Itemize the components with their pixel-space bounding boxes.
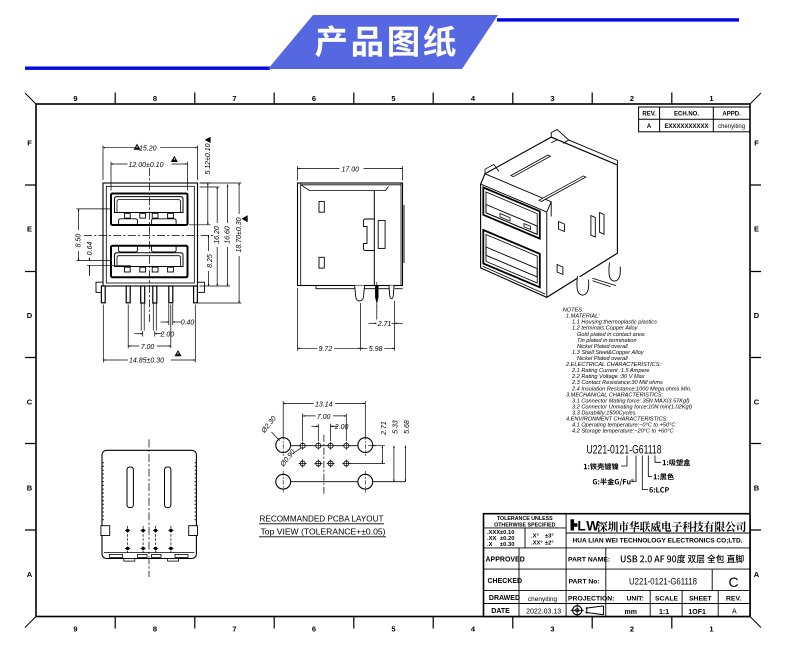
svg-text:.XX°: .XX° (531, 541, 543, 547)
svg-text:2.4 Insulation Resistance:10: 2.4 Insulation Resistance:1000 Mega ohms… (571, 386, 691, 392)
svg-text:DRAWED: DRAWED (489, 595, 520, 602)
svg-text:L: L (577, 519, 585, 534)
svg-text:2.71: 2.71 (381, 421, 388, 436)
svg-text:5: 5 (391, 94, 395, 103)
svg-text:2: 2 (630, 625, 634, 634)
svg-text:14.85±0.30: 14.85±0.30 (129, 357, 164, 364)
svg-text:2.00: 2.00 (334, 424, 349, 431)
svg-text:F: F (27, 139, 32, 148)
svg-text:16.20: 16.20 (214, 226, 221, 244)
svg-text:U221-0121-G61118: U221-0121-G61118 (629, 577, 697, 588)
svg-text:9: 9 (73, 94, 77, 103)
svg-text:E: E (754, 225, 759, 234)
svg-text:6: 6 (312, 625, 316, 634)
svg-text:3: 3 (550, 625, 554, 634)
svg-text:1:1: 1:1 (659, 609, 669, 616)
svg-text:8.50: 8.50 (75, 234, 82, 248)
svg-text:A: A (647, 124, 652, 130)
svg-text:EXXXXXXXXXX: EXXXXXXXXXX (665, 124, 709, 130)
svg-text:mm: mm (625, 609, 637, 616)
svg-text:W: W (586, 519, 599, 534)
svg-text:.X: .X (487, 542, 493, 548)
svg-text:4: 4 (471, 94, 476, 103)
svg-text:SCALE: SCALE (655, 596, 679, 603)
svg-text:5.12±0.10: 5.12±0.10 (205, 143, 212, 174)
svg-text:12.00±0.10: 12.00±0.10 (129, 162, 164, 169)
svg-text:UNIT:: UNIT: (627, 596, 644, 603)
svg-text:9: 9 (73, 625, 77, 634)
svg-text:Tin plated in termination: Tin plated in termination (577, 338, 637, 344)
svg-text:Ø2.30: Ø2.30 (260, 415, 278, 435)
svg-text:U221-0121-G61118: U221-0121-G61118 (587, 445, 662, 457)
svg-text:SHEET: SHEET (689, 596, 713, 603)
svg-text:3: 3 (550, 94, 554, 103)
svg-text:1: 1 (709, 625, 713, 634)
svg-text:PART No:: PART No: (569, 579, 600, 586)
svg-text:7.00: 7.00 (141, 344, 155, 351)
svg-text:B: B (27, 484, 33, 493)
svg-text:D: D (754, 311, 760, 320)
svg-text:chenyiting: chenyiting (528, 596, 558, 603)
svg-text:18.70±0.30: 18.70±0.30 (236, 217, 243, 252)
svg-text:OTHERWISE SPECIFIED: OTHERWISE SPECIFIED (494, 523, 556, 529)
svg-text:APPD.: APPD. (722, 112, 741, 118)
svg-text:9.72: 9.72 (319, 346, 333, 353)
svg-text:3.1 Connector Mating force:: 3.1 Connector Mating force: 35N MAX(3.57… (572, 398, 690, 404)
svg-text:B: B (754, 484, 760, 493)
svg-text:4.2 Storage temperature:−20°: 4.2 Storage temperature:−20°C to +60°C (572, 429, 674, 435)
svg-text:F: F (754, 139, 759, 148)
svg-text:7: 7 (232, 625, 236, 634)
svg-text:6: 6 (312, 94, 316, 103)
svg-text:ECH.NO.: ECH.NO. (674, 112, 699, 118)
svg-text:17.00: 17.00 (342, 166, 360, 173)
svg-text:15.20: 15.20 (139, 146, 157, 153)
svg-text:2.1 Rating Current :1.5 Amp: 2.1 Rating Current :1.5 Ampere (571, 368, 650, 374)
svg-text:A: A (27, 570, 33, 579)
svg-text:0.40: 0.40 (181, 320, 195, 327)
svg-text:8.25: 8.25 (207, 254, 214, 268)
svg-text:PART NAME:: PART NAME: (568, 557, 610, 564)
svg-text:1.3 Shell:Steel&Copper Alloy: 1.3 Shell:Steel&Copper Alloy (572, 350, 645, 356)
svg-text:RECOMMANDED PCBA LAYOUT: RECOMMANDED PCBA LAYOUT (260, 515, 384, 524)
svg-text:DATE: DATE (491, 608, 510, 615)
svg-text:2.71: 2.71 (377, 321, 392, 328)
svg-text:7: 7 (232, 94, 236, 103)
svg-text:1: 1 (709, 94, 713, 103)
svg-text:2.00: 2.00 (160, 331, 175, 338)
svg-text:NOTES:: NOTES: (563, 308, 584, 314)
svg-text:TOLERANCE UNLESS: TOLERANCE UNLESS (497, 516, 553, 522)
svg-text:2.3 Contact Resistance:30 M: 2.3 Contact Resistance:30 Mill ohms (571, 380, 663, 386)
svg-text:1.2 terminals:Copper Alloy: 1.2 terminals:Copper Alloy (572, 326, 639, 332)
svg-text:2022.03.13: 2022.03.13 (526, 609, 561, 616)
svg-text:±2°: ±2° (545, 541, 554, 547)
svg-text:C: C (754, 398, 760, 407)
svg-text:chenyiting: chenyiting (718, 124, 745, 130)
svg-text:CHECKED: CHECKED (488, 578, 523, 585)
svg-text:E: E (27, 225, 32, 234)
svg-text:4: 4 (471, 625, 476, 634)
svg-text:±3°: ±3° (545, 534, 554, 540)
svg-text:7.00: 7.00 (317, 414, 331, 421)
svg-text:.X°: .X° (531, 534, 539, 540)
svg-text:Top VIEW (TOLERANCE+±0.05): Top VIEW (TOLERANCE+±0.05) (261, 528, 386, 537)
svg-text:REV.: REV. (726, 596, 741, 603)
svg-text:16.60: 16.60 (225, 226, 232, 244)
svg-text:1.1 Housing:thermoplastic pl: 1.1 Housing:thermoplastic plastics (572, 320, 657, 326)
svg-text:3.3 Durability:1500Cycles.: 3.3 Durability:1500Cycles. (572, 411, 637, 417)
svg-text:±0.30: ±0.30 (500, 542, 514, 548)
svg-text:4.ENVIRONMENT CHARACTERISTICS: 4.ENVIRONMENT CHARACTERISTICS: (566, 417, 668, 423)
svg-text:Nickel Plated overall: Nickel Plated overall (577, 356, 628, 362)
svg-text:C: C (27, 398, 33, 407)
svg-text:5.98: 5.98 (369, 346, 383, 353)
svg-text:13.14: 13.14 (315, 401, 333, 408)
svg-text:5.33: 5.33 (392, 420, 399, 434)
svg-text:APPROVED: APPROVED (486, 557, 525, 564)
svg-text:D: D (27, 311, 33, 320)
svg-text:PROJECTION:: PROJECTION: (568, 596, 614, 603)
svg-text:A: A (732, 609, 737, 616)
svg-text:HUA LIAN WEI TECHNOLOGY EL: HUA LIAN WEI TECHNOLOGY ELECTRONICS CO;L… (573, 538, 743, 545)
svg-text:C: C (729, 574, 739, 590)
svg-text:5.68: 5.68 (404, 420, 411, 434)
svg-text:1OF1: 1OF1 (688, 609, 706, 616)
svg-text:REV.: REV. (642, 112, 656, 118)
svg-text:5: 5 (391, 625, 395, 634)
svg-text:8: 8 (153, 625, 157, 634)
svg-text:2: 2 (630, 94, 634, 103)
svg-text:8: 8 (153, 94, 157, 103)
svg-text:A: A (754, 570, 760, 579)
svg-text:0.64: 0.64 (87, 242, 94, 256)
